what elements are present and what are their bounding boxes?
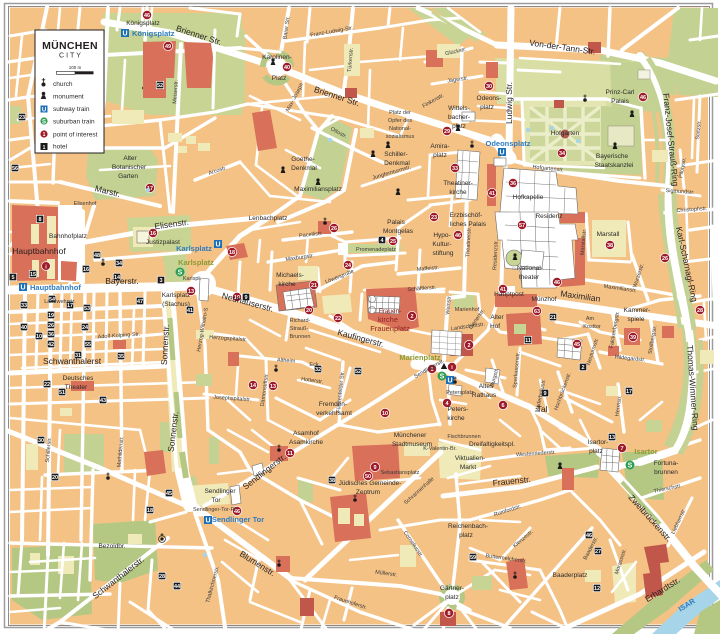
svg-text:Odeons-: Odeons- [477,95,502,102]
svg-text:S: S [42,120,46,126]
svg-text:Richard-: Richard- [290,318,311,324]
svg-text:12: 12 [594,586,600,592]
svg-text:brunnen: brunnen [654,469,678,476]
svg-text:Karlspl.: Karlspl. [183,276,202,282]
svg-text:100 m: 100 m [69,65,82,70]
svg-text:36: 36 [48,332,54,338]
svg-text:Fremden-: Fremden- [319,401,347,408]
svg-text:Zentrum: Zentrum [356,489,380,496]
svg-text:S: S [440,374,445,381]
svg-text:Bayerstr.: Bayerstr. [105,276,139,286]
svg-text:Erzbischöf-: Erzbischöf- [450,212,483,219]
svg-text:Opfer des: Opfer des [388,118,412,124]
svg-text:6: 6 [501,403,504,409]
svg-text:41: 41 [187,308,193,314]
svg-text:Alter: Alter [123,155,137,162]
svg-text:Sendlinger: Sendlinger [204,488,236,495]
svg-text:38: 38 [329,478,335,484]
svg-text:18: 18 [147,508,153,514]
svg-text:Theatiner-: Theatiner- [443,180,473,187]
svg-text:Kosttor: Kosttor [583,324,601,330]
svg-text:Platz: Platz [272,75,286,82]
svg-text:K-Valentin-Br.: K-Valentin-Br. [423,446,457,452]
svg-text:Prinz-Carl: Prinz-Carl [606,89,635,96]
svg-text:National-: National- [517,265,543,272]
svg-text:Schwanthalerst: Schwanthalerst [43,356,102,366]
svg-text:18: 18 [229,250,235,256]
svg-text:platz: platz [589,448,603,455]
svg-text:30: 30 [486,84,492,90]
svg-text:CITY: CITY [59,53,83,60]
svg-text:2: 2 [410,314,413,320]
svg-text:17: 17 [626,389,632,395]
svg-text:Bayerische: Bayerische [596,153,629,160]
svg-text:Landwehrstr.: Landwehrstr. [44,299,76,305]
svg-text:Theater: Theater [65,384,88,391]
svg-text:15: 15 [30,272,36,278]
svg-text:27: 27 [595,549,601,555]
svg-text:point of interest: point of interest [53,132,98,139]
svg-text:subway train: subway train [53,106,90,113]
svg-text:36: 36 [510,181,516,187]
svg-text:24: 24 [345,263,352,269]
svg-text:U: U [122,31,127,38]
svg-text:Eck: Eck [309,362,318,368]
svg-text:U: U [205,518,210,525]
svg-text:23: 23 [19,115,25,121]
svg-text:platz: platz [480,104,494,111]
svg-text:Bahnhofplatz: Bahnhofplatz [49,233,87,240]
svg-text:44: 44 [174,584,181,590]
svg-text:22: 22 [335,316,341,322]
svg-text:U: U [499,150,504,157]
svg-text:Hauptbahnhof: Hauptbahnhof [30,283,81,292]
svg-text:Garten: Garten [118,173,138,180]
svg-text:Sebastiansplatz: Sebastiansplatz [381,470,420,476]
svg-text:25: 25 [390,239,396,245]
svg-text:48: 48 [94,253,100,259]
svg-text:24: 24 [82,325,89,331]
svg-text:Frauenplatz: Frauenplatz [370,324,410,333]
svg-text:kirche: kirche [447,415,465,422]
svg-text:Karlsplatz: Karlsplatz [178,258,214,267]
svg-text:Platz der: Platz der [389,110,411,116]
svg-text:Münchener: Münchener [394,432,427,439]
svg-text:Maximiliansplatz: Maximiliansplatz [294,186,342,193]
svg-text:42: 42 [48,342,54,348]
svg-text:10: 10 [382,411,388,417]
svg-text:52: 52 [157,83,163,89]
svg-text:Marstall: Marstall [597,231,620,238]
svg-text:Goethe-: Goethe- [291,156,315,163]
svg-text:2: 2 [581,365,584,371]
svg-text:Denkmal: Denkmal [291,165,317,172]
svg-text:Hypo-: Hypo- [433,232,450,239]
svg-text:Isartor: Isartor [634,447,657,456]
svg-text:21: 21 [550,315,556,321]
svg-text:kirche: kirche [278,281,296,288]
svg-text:1: 1 [43,132,46,138]
svg-text:26: 26 [48,323,54,329]
svg-text:MÜNCHEN: MÜNCHEN [42,39,98,52]
svg-text:34: 34 [116,261,123,267]
svg-text:kirche: kirche [378,315,398,324]
svg-text:church: church [53,81,73,88]
svg-text:59: 59 [470,555,476,561]
svg-text:16: 16 [83,267,89,273]
svg-text:19: 19 [48,313,54,319]
svg-text:14: 14 [250,383,257,389]
svg-text:Hofgarten: Hofgarten [551,130,580,137]
svg-text:45: 45 [166,491,172,497]
svg-text:2: 2 [467,343,470,349]
svg-text:20: 20 [306,308,312,314]
svg-text:49: 49 [165,44,171,50]
svg-text:Hofkapelle: Hofkapelle [513,194,544,201]
svg-text:33: 33 [21,303,27,309]
svg-text:Petersplatz: Petersplatz [446,390,474,396]
svg-text:Tor: Tor [211,497,221,504]
svg-text:sozialismus: sozialismus [386,134,415,140]
svg-text:U: U [42,107,46,113]
svg-text:10: 10 [36,334,42,340]
svg-text:Marienplatz: Marienplatz [399,353,441,362]
svg-text:Rathaus: Rathaus [472,392,497,399]
svg-text:S: S [628,463,633,470]
svg-text:63: 63 [534,309,540,315]
svg-text:47: 47 [137,299,143,305]
svg-text:Residenz: Residenz [535,213,562,220]
svg-text:Königsplatz: Königsplatz [132,29,175,38]
svg-text:Markt: Markt [460,464,476,471]
svg-text:Isartor-: Isartor- [588,439,609,446]
svg-text:Marienhof: Marienhof [455,307,480,313]
svg-text:Fischbrunnen: Fischbrunnen [447,434,480,440]
svg-text:29: 29 [444,129,450,135]
svg-text:46: 46 [640,95,646,101]
svg-text:kirche: kirche [449,189,467,196]
svg-text:spiele: spiele [628,316,645,323]
svg-text:Asamhof: Asamhof [293,430,319,437]
svg-text:Ludwig Str.: Ludwig Str. [504,82,514,124]
svg-text:26: 26 [662,256,668,262]
svg-text:Montgelas: Montgelas [383,228,414,235]
svg-text:platz: platz [445,594,459,601]
svg-text:46: 46 [586,533,592,539]
svg-text:Deutsches: Deutsches [63,375,94,382]
svg-text:Karolinen-: Karolinen- [262,54,292,61]
svg-text:53: 53 [84,306,90,312]
svg-text:13: 13 [270,384,276,390]
svg-text:38: 38 [607,243,613,249]
svg-text:Dreifaltigkeitspl.: Dreifaltigkeitspl. [469,441,515,448]
svg-text:16: 16 [150,231,156,237]
svg-text:Karlsplatz: Karlsplatz [176,244,212,253]
svg-text:Lenbachplatz: Lenbachplatz [249,215,288,222]
svg-text:45: 45 [574,342,580,348]
svg-text:Königsplatz: Königsplatz [126,20,160,27]
svg-text:13: 13 [609,435,615,441]
svg-text:Asamkirche: Asamkirche [289,439,323,446]
svg-text:Staatskanzlei: Staatskanzlei [595,162,634,169]
svg-text:46: 46 [455,233,461,239]
svg-text:5: 5 [11,275,14,281]
svg-text:8: 8 [38,217,41,223]
svg-text:Reichenbach-: Reichenbach- [448,523,488,530]
svg-text:20: 20 [52,475,58,481]
svg-text:Botanischer: Botanischer [112,164,147,171]
svg-text:56: 56 [12,166,18,172]
svg-text:Peters-: Peters- [448,406,469,413]
svg-text:Michaels-: Michaels- [276,272,304,279]
svg-text:Frauen-: Frauen- [379,308,402,315]
svg-text:41: 41 [489,191,495,197]
svg-text:28: 28 [159,574,165,580]
svg-text:Am: Am [586,316,595,322]
svg-text:platz: platz [433,152,447,159]
svg-text:U: U [20,285,25,292]
svg-text:46: 46 [554,280,560,286]
svg-text:bacher-: bacher- [448,114,470,121]
svg-text:34: 34 [559,151,566,157]
svg-text:22: 22 [44,382,50,388]
svg-text:National-: National- [389,126,411,132]
svg-text:Alter: Alter [490,314,504,321]
svg-text:35: 35 [118,354,124,360]
svg-text:8: 8 [447,611,450,617]
svg-text:46: 46 [144,13,150,19]
svg-text:Schiller-: Schiller- [384,151,407,158]
svg-text:suburban train: suburban train [53,119,95,126]
svg-text:Wittels-: Wittels- [448,105,470,112]
svg-text:40: 40 [21,325,27,331]
svg-text:11: 11 [287,451,293,457]
svg-text:Strauß-: Strauß- [290,326,309,332]
svg-text:Hauptbahnhof: Hauptbahnhof [12,246,66,256]
svg-text:52: 52 [355,369,361,375]
svg-text:55: 55 [85,342,91,348]
svg-text:23: 23 [431,215,437,221]
svg-text:Kammer-: Kammer- [624,307,651,314]
svg-text:theater: theater [519,274,540,281]
svg-text:3: 3 [159,278,162,284]
svg-text:U: U [447,378,452,385]
svg-text:Kultur-: Kultur- [432,241,451,248]
svg-text:Palais: Palais [611,98,629,105]
svg-text:7: 7 [620,446,623,452]
svg-text:hotel: hotel [53,144,68,151]
svg-text:platz: platz [459,532,473,539]
svg-text:Palais: Palais [387,219,405,226]
svg-text:43: 43 [100,398,106,404]
svg-text:U: U [215,242,220,249]
svg-text:26: 26 [331,226,337,232]
svg-text:9: 9 [373,465,376,471]
svg-text:1: 1 [43,145,46,151]
svg-text:Justizpalast: Justizpalast [146,239,180,246]
svg-text:Amira-: Amira- [430,143,449,150]
svg-text:Sendlinger-Tor-Pl.: Sendlinger-Tor-Pl. [193,507,237,513]
svg-text:30: 30 [38,438,44,444]
svg-text:Viktualien-: Viktualien- [455,455,485,462]
svg-text:Fortuna-: Fortuna- [654,460,679,467]
svg-text:Jüdisches Gemeinde-: Jüdisches Gemeinde- [339,480,402,487]
svg-text:21: 21 [311,283,317,289]
svg-text:monument: monument [53,94,84,101]
svg-text:Sendlinger Tor: Sendlinger Tor [212,515,264,524]
svg-text:Promenadeplatz: Promenadeplatz [356,247,396,253]
svg-text:Baaderplatz: Baaderplatz [553,572,588,579]
svg-text:Brunnen: Brunnen [290,334,311,340]
svg-text:Sonnenstr.: Sonnenstr. [159,324,171,365]
svg-text:Odeonsplatz: Odeonsplatz [485,139,530,148]
svg-text:stiftung: stiftung [433,250,454,257]
svg-text:40: 40 [284,65,290,71]
svg-text:Elisenhof: Elisenhof [74,201,97,207]
svg-text:Hauptpost: Hauptpost [494,291,524,298]
svg-text:Hof: Hof [490,323,500,330]
svg-text:39: 39 [630,335,636,341]
svg-text:28: 28 [697,308,703,314]
svg-text:verkehrsamt: verkehrsamt [316,410,352,417]
svg-text:57: 57 [519,223,525,229]
svg-text:Karlsplatz: Karlsplatz [162,292,191,299]
svg-text:Münzhof: Münzhof [532,296,557,303]
svg-text:33: 33 [452,166,458,172]
svg-text:11: 11 [525,338,531,344]
svg-text:Gärtner-: Gärtner- [440,585,464,592]
svg-text:(Stachus): (Stachus) [162,301,190,308]
svg-text:Bezoldbr.: Bezoldbr. [98,543,125,550]
